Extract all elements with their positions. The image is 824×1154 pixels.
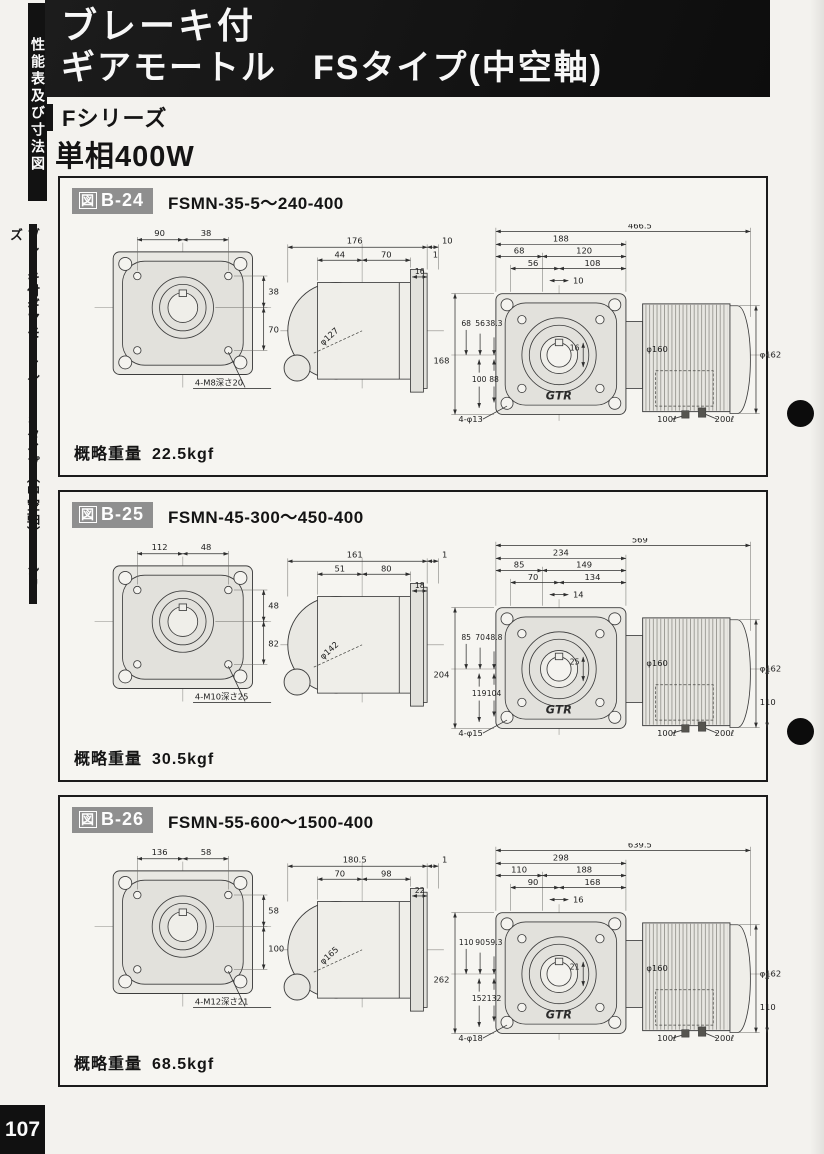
series-label: Fシリーズ (62, 101, 167, 133)
dim-label: 149 (576, 560, 592, 570)
assembly-view: GTR φ160 569 234 (433, 538, 781, 738)
weight-value: 22.5kgf (152, 446, 214, 463)
registration-dot (787, 400, 814, 427)
assembly-right-dim-group: 110 (760, 974, 776, 1033)
sidebar-tab-label: 性能表及び寸法図 (30, 37, 46, 173)
assembly-right-dim-group: 110 (760, 669, 776, 728)
figure-title: 図 B-25 FSMN-45-300～450-400 (72, 502, 364, 528)
dim-label: 16 (573, 894, 584, 904)
weight-value: 30.5kgf (152, 751, 214, 768)
dim-label: 188 (576, 865, 592, 875)
weight-label: 概略重量 (74, 1056, 142, 1073)
figure-badge: 図 B-25 (72, 502, 153, 528)
dim-label: 70 (268, 325, 279, 335)
dim-label: 110 (511, 865, 527, 875)
dim-label: 88 (489, 375, 499, 384)
page-number-text: 107 (5, 1118, 40, 1142)
dim-label: 161 (347, 550, 363, 560)
dim-label: 136 (152, 847, 168, 857)
weight-note: 概略重量30.5kgf (74, 745, 214, 769)
figure-box: 図 B-24 FSMN-35-5～240-400 (58, 176, 768, 477)
catalog-page: 性能表及び寸法図 ブレーキ付ギアモートル FSタイプ（中空軸）・Fシリーズ ブレ… (0, 0, 824, 1154)
dim-label: 234 (553, 548, 569, 558)
dim-label: 82 (268, 639, 279, 649)
dim-label: 110 (459, 938, 474, 947)
weight-label: 概略重量 (74, 751, 142, 768)
side-view: φ142 161 1 51 80 18 (280, 550, 447, 707)
front-view: 90 38 38 70 4-M8深さ20 (95, 228, 279, 388)
oil-note: 200ℓ (715, 1033, 734, 1043)
brand-logo: GTR (546, 390, 572, 403)
tap-note: 4-M8深さ20 (195, 378, 243, 388)
dim-label: 48 (268, 601, 279, 611)
tap-note: 4-M10深さ25 (195, 692, 249, 702)
front-view: 112 48 48 82 4-M10深さ25 (95, 542, 279, 702)
side-view: φ165 180.5 1 70 98 22 (280, 855, 447, 1012)
dim-label: 1 (442, 855, 447, 865)
figure-number: B-24 (101, 190, 144, 211)
dim-label: 100 (472, 375, 487, 384)
dim-label: 16 (415, 267, 425, 276)
dim-label: 21 (570, 962, 580, 971)
dim-label: 168 (585, 877, 601, 887)
dim-label: 68 (514, 246, 525, 256)
brand-logo: GTR (546, 1009, 572, 1022)
oil-note: 100ℓ (657, 728, 676, 738)
assembly-view: GTR φ160 466.5 188 (433, 224, 781, 424)
dim-label: 56 (475, 319, 485, 328)
dim-label: 90 (528, 877, 539, 887)
page-header: ブレーキ付 ギアモートル FSタイプ(中空軸) (45, 0, 770, 97)
figure-number: B-26 (101, 809, 144, 830)
dim-label: 58 (201, 847, 212, 857)
dim-label: 48 (201, 542, 212, 552)
figure-badge: 図 B-26 (72, 807, 153, 833)
weight-note: 概略重量68.5kgf (74, 1050, 214, 1074)
dim-label: 44 (335, 249, 346, 259)
dim-label: 134 (585, 572, 601, 582)
dim-label: 569 (632, 538, 648, 545)
dim-label: 108 (585, 258, 601, 268)
weight-note: 概略重量22.5kgf (74, 440, 214, 464)
dim-label: φ162 (760, 969, 781, 979)
title-line1: ブレーキ付 (61, 5, 770, 47)
side-view: φ127 176 10 44 70 1 16 (280, 236, 452, 393)
assembly-view: GTR φ160 639.5 298 (433, 843, 781, 1043)
tap-note: 4-M12深さ21 (195, 997, 249, 1007)
oil-note: 100ℓ (657, 414, 676, 424)
dim-label: 639.5 (628, 843, 652, 850)
dim-label: 70 (528, 572, 539, 582)
zu-glyph: 図 (79, 811, 97, 828)
dim-label: 90 (154, 228, 165, 238)
dim-label: 110 (760, 697, 776, 707)
registration-dot (787, 718, 814, 745)
figure-badge: 図 B-24 (72, 188, 153, 214)
technical-drawing: 90 38 38 70 4-M8深さ20 (76, 224, 782, 424)
oil-note: 100ℓ (657, 1033, 676, 1043)
dim-label: 176 (347, 236, 363, 246)
figure-box: 図 B-25 FSMN-45-300～450-400 (58, 490, 768, 782)
diameter-label: φ160 (646, 658, 667, 668)
mount-hole-note: 4-φ13 (458, 414, 483, 424)
figure-title: 図 B-24 FSMN-35-5～240-400 (72, 188, 344, 214)
dim-label: 59.3 (486, 938, 503, 947)
dim-label: 16 (570, 343, 580, 352)
dim-label: 58 (268, 906, 279, 916)
page-number: 107 (0, 1105, 45, 1154)
dim-label: 18 (415, 581, 425, 590)
dim-label: φ162 (760, 664, 781, 674)
dim-label: 298 (553, 853, 569, 863)
dim-label: 119 (472, 689, 487, 698)
model-number: FSMN-35-5～240-400 (168, 189, 344, 214)
dim-label: 38 (201, 228, 212, 238)
figure-number: B-25 (101, 504, 144, 525)
dim-label: 80 (381, 563, 392, 573)
dim-label: 51 (335, 563, 346, 573)
technical-drawing: 136 58 58 100 4-M12深さ21 (76, 843, 782, 1043)
oil-note: 200ℓ (715, 414, 734, 424)
dim-label: 25 (570, 657, 580, 666)
dim-label: 100 (268, 944, 284, 954)
oil-note: 200ℓ (715, 728, 734, 738)
dim-label: 85 (461, 633, 471, 642)
model-number: FSMN-55-600～1500-400 (168, 808, 374, 833)
dim-label: 14 (573, 589, 584, 599)
dim-label: 1 (433, 249, 438, 259)
dim-label: 68 (461, 319, 471, 328)
dim-label: 132 (487, 994, 502, 1003)
dim-label: 168 (433, 355, 449, 365)
dim-label: 152 (472, 994, 487, 1003)
dim-label: 180.5 (343, 855, 367, 865)
dim-label: 120 (576, 246, 592, 256)
dim-label: 1 (442, 550, 447, 560)
dim-label: 85 (514, 560, 525, 570)
dim-label: φ162 (760, 350, 781, 360)
diameter-label: φ160 (646, 963, 667, 973)
mount-hole-note: 4-φ18 (458, 1033, 483, 1043)
technical-drawing: 112 48 48 82 4-M10深さ25 (76, 538, 782, 738)
dim-label: 204 (433, 669, 449, 679)
brand-logo: GTR (546, 704, 572, 717)
title-line2: ギアモートル FSタイプ(中空軸) (61, 47, 770, 89)
dim-label: 90 (475, 938, 485, 947)
dim-label: 262 (433, 974, 449, 984)
dim-label: 110 (760, 1002, 776, 1012)
model-number: FSMN-45-300～450-400 (168, 503, 364, 528)
sidebar-rule (29, 224, 37, 604)
zu-glyph: 図 (79, 192, 97, 209)
dim-label: 466.5 (628, 224, 652, 231)
dim-label: 48.8 (486, 633, 503, 642)
series-bar (46, 104, 53, 131)
dim-label: 112 (152, 542, 168, 552)
dim-label: 104 (487, 689, 502, 698)
power-heading: 単相400W (55, 133, 195, 175)
dim-label: 70 (381, 249, 392, 259)
dim-label: 56 (528, 258, 539, 268)
dim-label: 38.3 (486, 319, 503, 328)
dim-label: 98 (381, 868, 392, 878)
dim-label: 38 (268, 287, 279, 297)
dim-label: 188 (553, 234, 569, 244)
weight-label: 概略重量 (74, 446, 142, 463)
dim-label: 22 (415, 886, 425, 895)
weight-value: 68.5kgf (152, 1056, 214, 1073)
dim-label: 70 (475, 633, 485, 642)
dim-label: 10 (573, 275, 584, 285)
zu-glyph: 図 (79, 506, 97, 523)
front-view: 136 58 58 100 4-M12深さ21 (95, 847, 285, 1007)
figure-list: 図 B-24 FSMN-35-5～240-400 (58, 176, 768, 1100)
mount-hole-note: 4-φ15 (458, 728, 483, 738)
diameter-label: φ160 (646, 344, 667, 354)
figure-title: 図 B-26 FSMN-55-600～1500-400 (72, 807, 374, 833)
dim-label: 10 (442, 236, 453, 246)
series-heading: Fシリーズ (46, 101, 167, 133)
dim-label: 70 (335, 868, 346, 878)
figure-box: 図 B-26 FSMN-55-600～1500-400 (58, 795, 768, 1087)
